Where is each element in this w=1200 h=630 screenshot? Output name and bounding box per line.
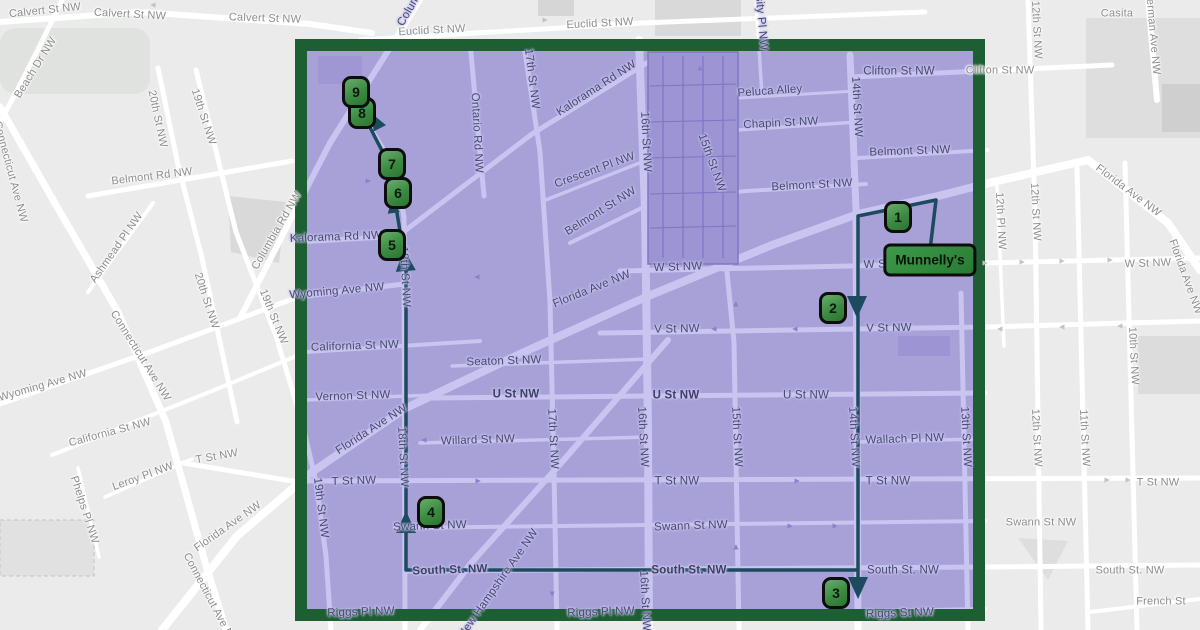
route-marker-1[interactable]: 1 (884, 201, 912, 233)
route-marker-6[interactable]: 6 (384, 177, 412, 209)
route-marker-2[interactable]: 2 (819, 292, 847, 324)
route-marker-5[interactable]: 5 (378, 229, 406, 261)
route-marker-3[interactable]: 3 (822, 577, 850, 609)
munnellys-marker[interactable]: Munnelly's (883, 244, 976, 277)
map-canvas[interactable]: Calvert St NWCalvert St NWCalvert St NWB… (0, 0, 1200, 630)
map-base-layer (0, 0, 1200, 630)
route-marker-9[interactable]: 9 (342, 76, 370, 108)
route-marker-7[interactable]: 7 (378, 148, 406, 180)
route-marker-4[interactable]: 4 (417, 496, 445, 528)
park-detail (648, 52, 738, 264)
